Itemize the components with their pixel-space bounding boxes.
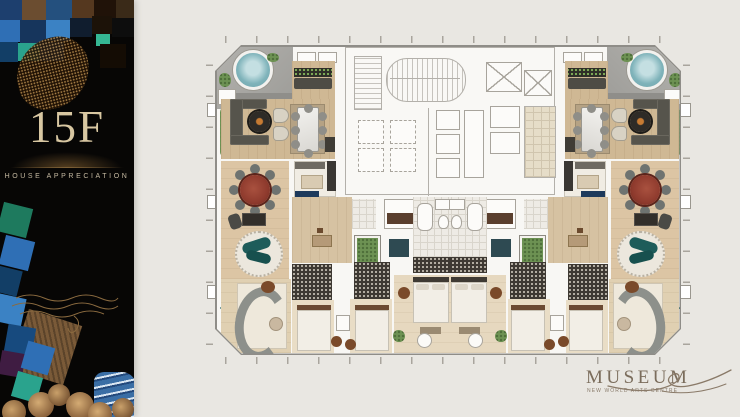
floorplan-canvas <box>217 47 680 354</box>
gold-wave-lines <box>10 290 120 340</box>
desk <box>242 213 266 226</box>
floorplan <box>215 45 681 355</box>
kitchen-table <box>577 175 599 189</box>
slide: 15F HOUSE APPRECIATION <box>0 0 740 417</box>
bench-navy <box>581 191 605 197</box>
balcony-chair <box>558 336 569 347</box>
mosaic-tile <box>22 0 46 20</box>
mosaic-tile <box>0 0 22 20</box>
console-sofa <box>568 78 606 89</box>
mosaic-tile <box>116 0 134 18</box>
round-chair <box>261 281 275 293</box>
desk <box>634 213 658 226</box>
dining-table <box>297 107 319 152</box>
toilet <box>451 215 462 229</box>
kitchen-counter <box>295 162 325 169</box>
pillow <box>416 284 429 290</box>
dark-door-panel <box>389 239 409 257</box>
corridor-wall <box>428 108 429 196</box>
round-chair <box>398 287 410 299</box>
desk-items <box>577 228 583 233</box>
mosaic-tile <box>0 20 20 42</box>
planter-strip <box>294 68 332 77</box>
side-table <box>617 317 631 331</box>
shrub <box>267 53 279 62</box>
armchair <box>611 126 627 141</box>
toilet <box>438 215 449 229</box>
stairwell <box>354 56 382 110</box>
sidebar-panel: 15F HOUSE APPRECIATION <box>0 0 134 417</box>
round-chair <box>490 287 502 299</box>
double-sink <box>449 199 465 210</box>
desk-items <box>317 228 323 233</box>
kitchen-appliances <box>327 161 336 191</box>
sofa-bottom <box>631 135 670 145</box>
pillow <box>471 284 484 290</box>
wave-curl <box>2 400 26 417</box>
laundry-cabinet <box>486 213 513 224</box>
divider-glow <box>12 152 122 168</box>
dining-chairs <box>291 112 300 121</box>
balcony-chair <box>331 336 342 347</box>
wardrobe-bath-zone <box>568 264 608 300</box>
lobby-room <box>390 148 416 172</box>
dark-door-panel <box>491 239 511 257</box>
floor-label: 15F <box>0 101 134 153</box>
wave-curl <box>112 398 134 417</box>
lobby-room <box>358 148 384 172</box>
bed <box>511 310 545 351</box>
balcony-table-set <box>468 333 483 348</box>
round-chair <box>625 281 639 293</box>
mosaic-tile <box>100 44 126 68</box>
mosaic-tile <box>46 0 72 20</box>
planter-strip <box>568 68 606 77</box>
logo-tagline: NEW WORLD ARTS CENTRE <box>587 388 678 394</box>
mosaic-tile <box>70 18 92 37</box>
mosaic-bathroom <box>524 199 548 229</box>
dining-table <box>581 107 603 152</box>
armchair <box>273 126 289 141</box>
bench-navy <box>295 191 319 197</box>
sofa-bottom <box>230 135 269 145</box>
side-table <box>269 317 283 331</box>
armchair <box>273 108 289 123</box>
wardrobe-bath-zone <box>510 262 546 299</box>
grid-ticks-top <box>225 36 671 43</box>
balcony-planter <box>495 330 507 342</box>
bed <box>355 310 389 351</box>
lobby-room <box>390 120 416 144</box>
bathtub <box>417 203 433 231</box>
red-round-table <box>240 175 270 205</box>
kitchen-appliances <box>564 161 573 191</box>
sideboard <box>565 137 575 152</box>
mosaic-tile <box>0 202 33 238</box>
bed <box>569 310 603 351</box>
mosaic-tile <box>92 16 112 34</box>
writing-desk <box>568 235 588 247</box>
shrub <box>219 73 231 87</box>
floorplan-outline <box>215 45 681 355</box>
kitchen-table <box>301 175 323 189</box>
master-wardrobe <box>450 257 487 273</box>
divider-line <box>10 167 124 168</box>
coffee-table <box>249 111 270 132</box>
lobby-room <box>358 120 384 144</box>
plan-wing-right <box>450 47 683 357</box>
nightstand <box>336 315 350 331</box>
balcony-chair <box>544 339 555 350</box>
mosaic-tile <box>72 0 94 18</box>
mosaic-tile <box>112 18 134 37</box>
nightstand <box>550 315 564 331</box>
writing-desk <box>312 235 332 247</box>
mosaic-bathroom <box>352 199 376 229</box>
shrub <box>669 73 681 87</box>
mosaic-tile <box>0 42 18 62</box>
pillow <box>455 284 468 290</box>
red-round-table <box>630 175 660 205</box>
wardrobe-bath-zone <box>292 264 332 300</box>
armchair <box>611 108 627 123</box>
wardrobe-bath-zone <box>354 262 390 299</box>
sidebar-subtitle: HOUSE APPRECIATION <box>0 173 134 180</box>
mosaic-tile <box>0 235 35 271</box>
shrub <box>621 53 633 62</box>
bed <box>297 310 331 351</box>
console-sofa <box>294 78 332 89</box>
bathtub <box>467 203 483 231</box>
master-wardrobe <box>413 257 450 273</box>
balcony-chair <box>345 339 356 350</box>
pillow <box>432 284 445 290</box>
dining-chairs <box>600 112 609 121</box>
coffee-table <box>630 111 651 132</box>
balcony-table-set <box>417 333 432 348</box>
stair-divider <box>390 78 460 79</box>
kitchen-counter <box>575 162 605 169</box>
sideboard <box>325 137 335 152</box>
balcony-planter <box>393 330 405 342</box>
laundry-cabinet <box>387 213 414 224</box>
